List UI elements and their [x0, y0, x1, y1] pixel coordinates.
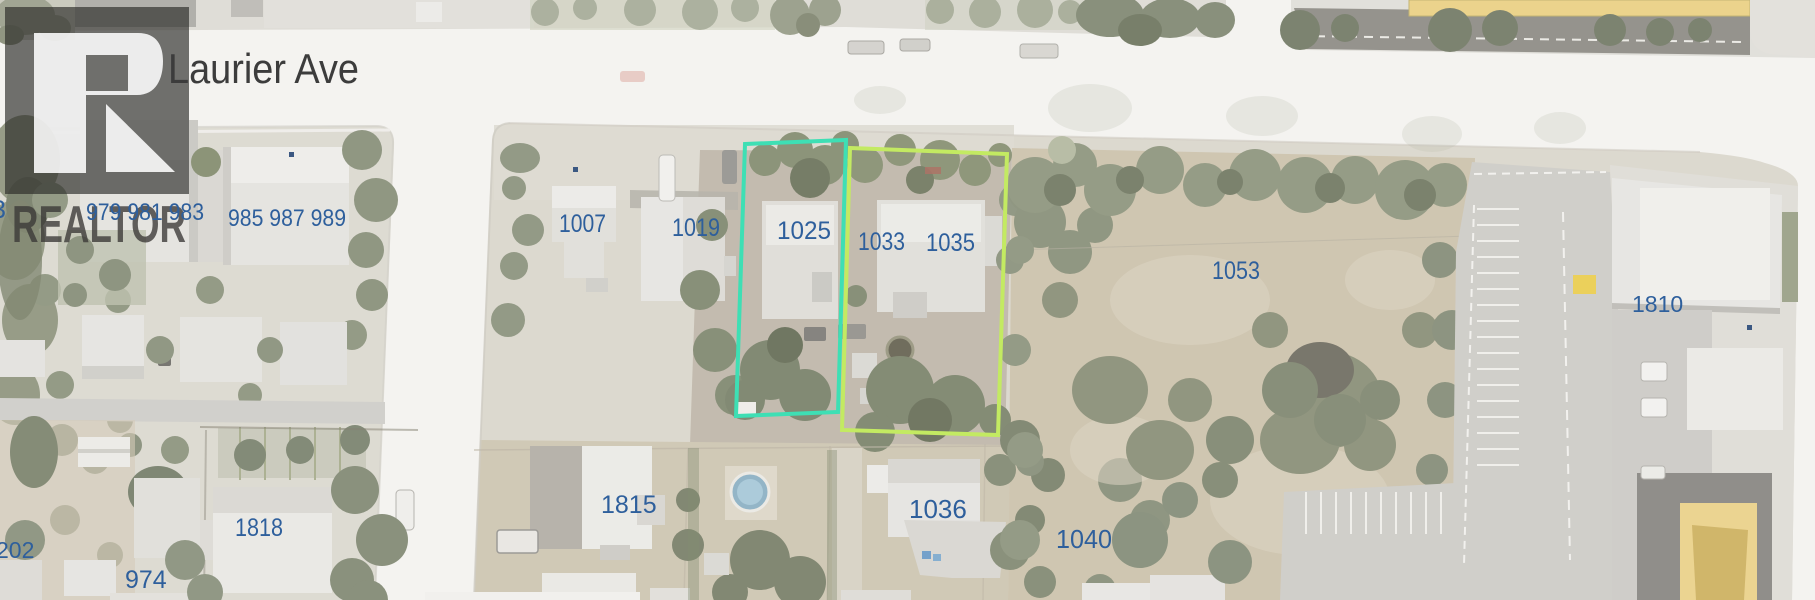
svg-text:985 987 989: 985 987 989 [228, 205, 346, 232]
svg-text:1815: 1815 [601, 491, 657, 519]
svg-text:1033: 1033 [858, 228, 905, 256]
svg-text:3: 3 [0, 196, 6, 224]
svg-text:1025: 1025 [777, 217, 831, 245]
svg-text:1035: 1035 [926, 229, 975, 257]
svg-text:979 981 983: 979 981 983 [86, 199, 204, 226]
svg-text:974: 974 [125, 566, 167, 594]
svg-text:1810: 1810 [1632, 291, 1683, 317]
svg-text:1036: 1036 [909, 494, 967, 524]
svg-text:202: 202 [0, 537, 34, 563]
svg-text:Laurier Ave: Laurier Ave [168, 45, 359, 92]
svg-text:1818: 1818 [235, 514, 283, 542]
svg-text:1053: 1053 [1212, 257, 1260, 285]
svg-text:1007: 1007 [559, 210, 606, 238]
svg-text:1040: 1040 [1056, 524, 1112, 554]
svg-text:1019: 1019 [672, 214, 720, 242]
